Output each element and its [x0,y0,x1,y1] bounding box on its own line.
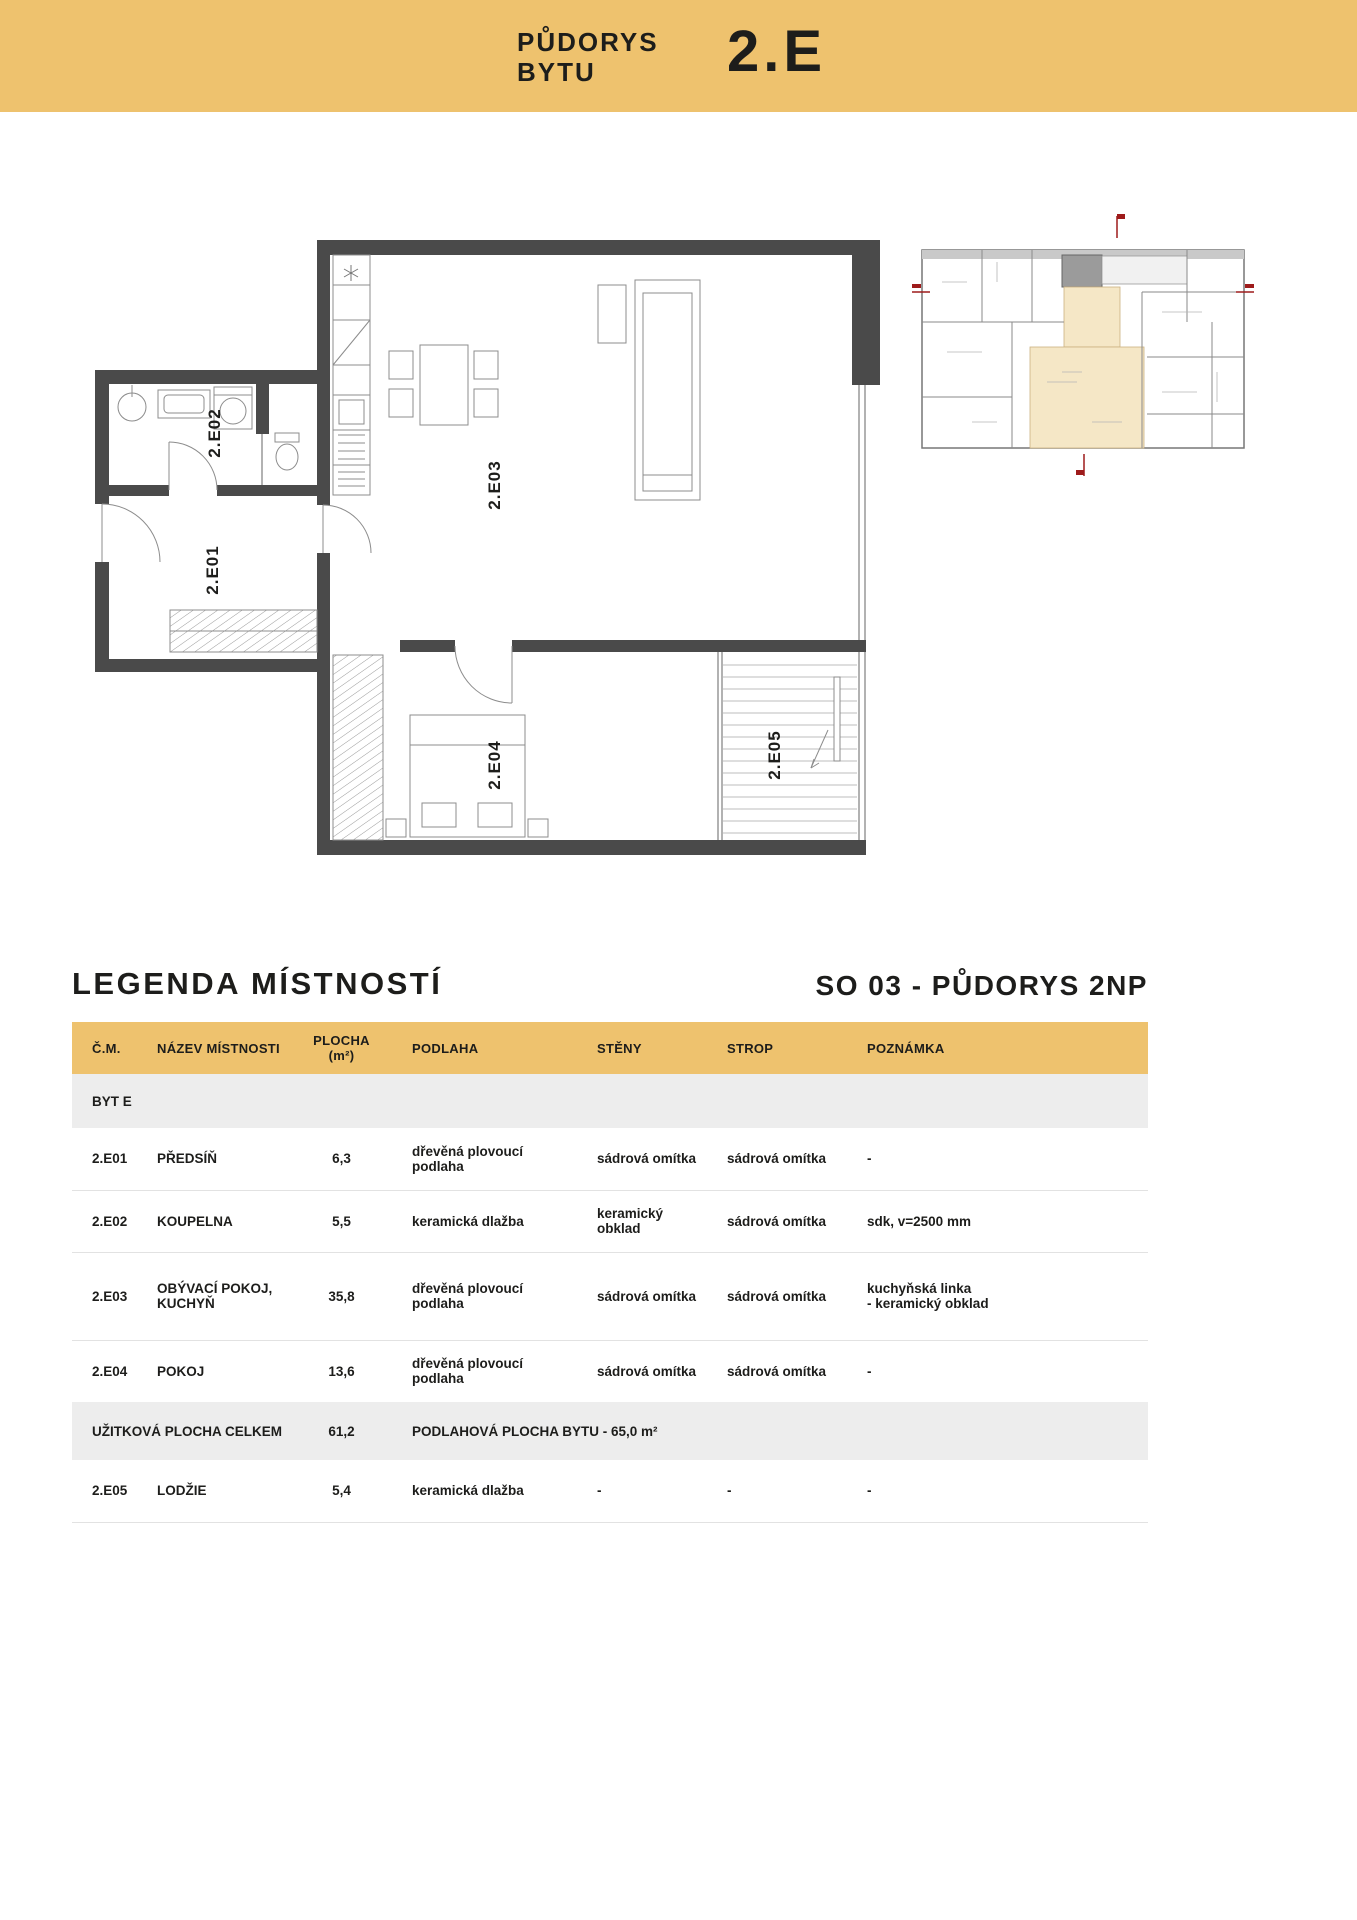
floor-plan: 2.E01 2.E02 2.E03 2.E04 2.E05 [80,185,880,865]
cell-area: 5,4 [297,1460,392,1522]
cell-walls: sádrová omítka [577,1128,707,1190]
cell-ceiling: sádrová omítka [707,1340,847,1402]
cell-area: 35,8 [297,1252,392,1340]
room-label-2e02: 2.E02 [205,408,224,457]
bed [386,715,548,837]
table-row: 2.E02 KOUPELNA 5,5 keramická dlažba kera… [72,1190,1148,1252]
cell-walls: sádrová omítka [577,1252,707,1340]
summary-note: PODLAHOVÁ PLOCHA BYTU - 65,0 m² [392,1402,1148,1460]
sofa [598,280,700,500]
kitchen-unit [333,255,370,495]
banner-unit-number: 2.E [727,18,826,85]
table-row: 2.E04 POKOJ 13,6 dřevěná plovoucí podlah… [72,1340,1148,1402]
legend-title: LEGENDA MÍSTNOSTÍ [72,966,442,1002]
cell-floor: keramická dlažba [392,1460,577,1522]
col-header-name: NÁZEV MÍSTNOSTI [137,1022,297,1074]
col-header-floor: PODLAHA [392,1022,577,1074]
wardrobe-hall [170,610,317,652]
room-label-2e05: 2.E05 [765,730,784,779]
cell-cm: 2.E02 [72,1190,137,1252]
col-header-cm: Č.M. [72,1022,137,1074]
cell-area: 6,3 [297,1128,392,1190]
legend-subtitle: SO 03 - PŮDORYS 2NP [816,970,1148,1002]
cell-walls: sádrová omítka [577,1340,707,1402]
col-header-area: PLOCHA (m²) [297,1022,392,1074]
cell-name: POKOJ [137,1340,297,1402]
col-header-note: POZNÁMKA [847,1022,1148,1074]
table-row: 2.E03 OBÝVACÍ POKOJ, KUCHYŇ 35,8 dřevěná… [72,1252,1148,1340]
wardrobe-bedroom [333,655,383,840]
cell-note: sdk, v=2500 mm [847,1190,1148,1252]
cell-area: 13,6 [297,1340,392,1402]
brochure-page: { "banner": { "title": "PŮDORYS\nBYTU", … [0,0,1357,1920]
cell-name: PŘEDSÍŇ [137,1128,297,1190]
cell-walls: keramický obklad [577,1190,707,1252]
summary-label: UŽITKOVÁ PLOCHA CELKEM [72,1402,297,1460]
cell-cm: 2.E01 [72,1128,137,1190]
dining-set [389,345,498,425]
cell-area: 5,5 [297,1190,392,1252]
cell-name: OBÝVACÍ POKOJ, KUCHYŇ [137,1252,297,1340]
cell-floor: dřevěná plovoucí podlaha [392,1252,577,1340]
room-label-2e01: 2.E01 [203,545,222,594]
cell-name: LODŽIE [137,1460,297,1522]
overview-keyplan [912,192,1257,492]
cell-ceiling: sádrová omítka [707,1128,847,1190]
cell-note: - [847,1128,1148,1190]
title-banner: PŮDORYS BYTU 2.E [0,0,1357,112]
col-header-walls: STĚNY [577,1022,707,1074]
summary-area: 61,2 [297,1402,392,1460]
cell-floor: dřevěná plovoucí podlaha [392,1340,577,1402]
cell-ceiling: sádrová omítka [707,1252,847,1340]
room-label-2e04: 2.E04 [485,740,504,789]
room-legend-table: Č.M. NÁZEV MÍSTNOSTI PLOCHA (m²) PODLAHA… [72,1022,1148,1523]
cell-walls: - [577,1460,707,1522]
cell-ceiling: sádrová omítka [707,1190,847,1252]
banner-title: PŮDORYS BYTU [517,27,659,87]
cell-cm: 2.E05 [72,1460,137,1522]
cell-note: kuchyňská linka - keramický obklad [847,1252,1148,1340]
keyplan-building [922,250,1244,448]
table-row: 2.E05 LODŽIE 5,4 keramická dlažba - - - [72,1460,1148,1522]
cell-floor: keramická dlažba [392,1190,577,1252]
cell-note: - [847,1460,1148,1522]
cell-cm: 2.E03 [72,1252,137,1340]
table-header-row: Č.M. NÁZEV MÍSTNOSTI PLOCHA (m²) PODLAHA… [72,1022,1148,1074]
cell-note: - [847,1340,1148,1402]
col-header-ceiling: STROP [707,1022,847,1074]
loggia [723,665,857,833]
summary-row: UŽITKOVÁ PLOCHA CELKEM 61,2 PODLAHOVÁ PL… [72,1402,1148,1460]
cell-name: KOUPELNA [137,1190,297,1252]
cell-floor: dřevěná plovoucí podlaha [392,1128,577,1190]
section-row: BYT E [72,1074,1148,1128]
room-label-2e03: 2.E03 [485,460,504,509]
table-row: 2.E01 PŘEDSÍŇ 6,3 dřevěná plovoucí podla… [72,1128,1148,1190]
cell-ceiling: - [707,1460,847,1522]
cell-cm: 2.E04 [72,1340,137,1402]
section-label: BYT E [72,1074,1148,1128]
